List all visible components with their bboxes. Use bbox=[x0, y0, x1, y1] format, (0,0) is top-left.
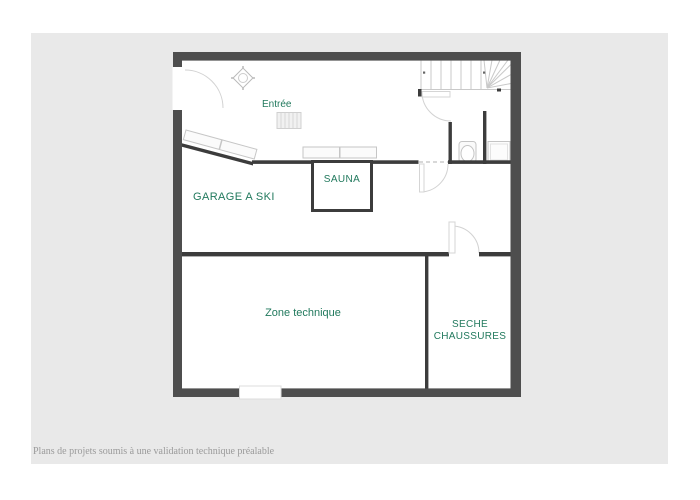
floor-plan-drawing bbox=[0, 0, 700, 500]
toilet-icon bbox=[459, 142, 476, 163]
floor-plan-stage: Entrée SAUNA GARAGE A SKI Zone technique… bbox=[0, 0, 700, 500]
room-label-sauna: SAUNA bbox=[311, 174, 373, 186]
entrance-opening bbox=[173, 67, 184, 110]
outer-wall-bottom bbox=[173, 388, 521, 397]
zone-door-leaf bbox=[449, 222, 455, 253]
outer-wall-top bbox=[173, 52, 521, 61]
wc-left-wall bbox=[449, 122, 452, 164]
garage-door-leaf bbox=[420, 164, 425, 192]
footer-disclaimer: Plans de projets soumis à une validation… bbox=[33, 446, 274, 457]
outer-wall-right bbox=[511, 52, 522, 397]
technical-zone-wall-right bbox=[479, 252, 511, 256]
stair-door-leaf bbox=[422, 92, 450, 98]
wc-right-wall bbox=[483, 111, 486, 164]
bench-icon bbox=[303, 147, 377, 158]
shower-tray-icon bbox=[488, 142, 510, 163]
floor-slab bbox=[173, 52, 521, 397]
window-opening bbox=[240, 386, 282, 399]
sauna-cabin bbox=[313, 162, 372, 211]
room-label-zone-technique: Zone technique bbox=[243, 307, 363, 320]
room-label-seche-chaussures: SECHE CHAUSSURES bbox=[427, 319, 513, 342]
door-mat-icon bbox=[277, 113, 301, 129]
room-label-entree: Entrée bbox=[262, 99, 291, 111]
technical-zone-wall-left bbox=[181, 252, 449, 256]
wc-bottom-wall bbox=[448, 160, 511, 164]
room-label-garage-a-ski: GARAGE A SKI bbox=[193, 191, 283, 204]
